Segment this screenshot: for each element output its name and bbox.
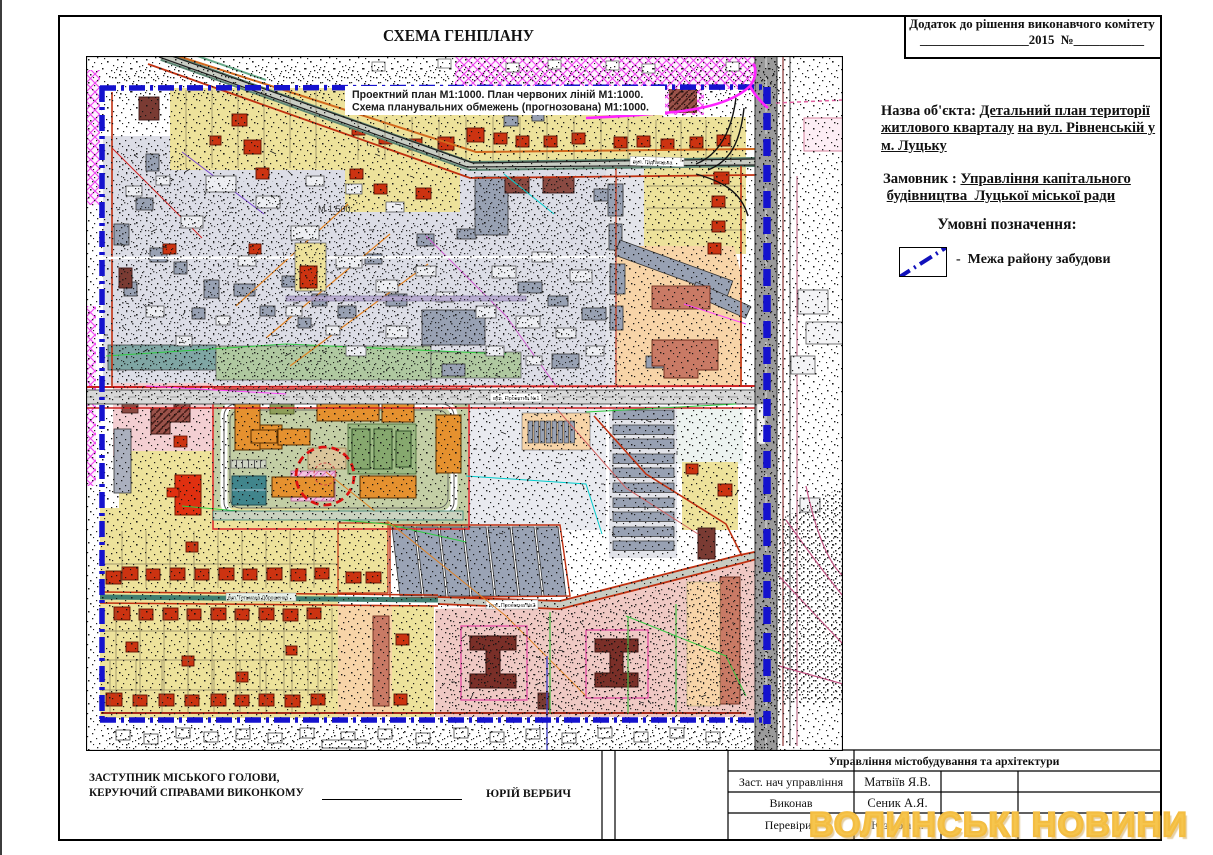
svg-text:Проектний план М1:1000. План: Проектний план М1:1000. План червоних лі… <box>352 89 643 101</box>
svg-text:Схема планувальних обмежень (: Схема планувальних обмежень (прогнозован… <box>352 102 649 114</box>
svg-text:М 1:500: М 1:500 <box>318 204 351 214</box>
